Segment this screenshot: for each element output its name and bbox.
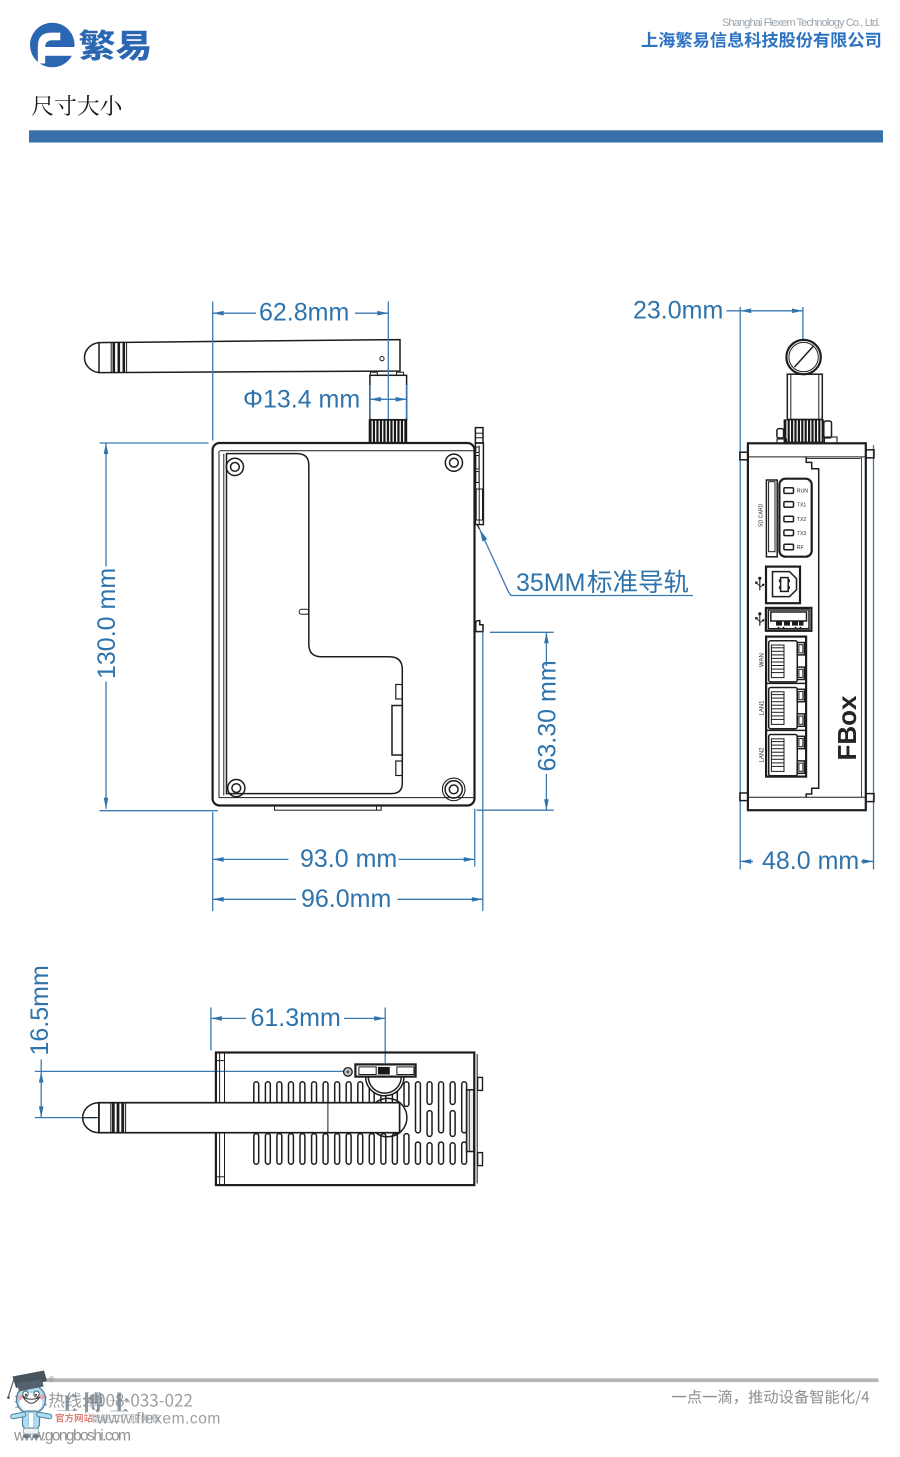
svg-text:TX2: TX2 bbox=[797, 517, 807, 523]
svg-text:61.3mm: 61.3mm bbox=[251, 1004, 341, 1032]
svg-text:LAN2: LAN2 bbox=[760, 747, 766, 763]
svg-text:RUN: RUN bbox=[797, 489, 808, 495]
svg-text:Shanghai Flexem Technology Co.: Shanghai Flexem Technology Co., Ltd. bbox=[722, 17, 881, 29]
svg-text:23.0mm: 23.0mm bbox=[633, 297, 723, 325]
svg-text:TX1: TX1 bbox=[797, 502, 807, 508]
svg-text:Φ13.4 mm: Φ13.4 mm bbox=[243, 386, 360, 414]
svg-text:16.5mm: 16.5mm bbox=[26, 965, 54, 1055]
svg-text:130.0 mm: 130.0 mm bbox=[93, 568, 121, 679]
svg-text:35MM: 35MM bbox=[516, 569, 585, 597]
svg-text:96.0mm: 96.0mm bbox=[301, 885, 391, 913]
svg-text:93.0 mm: 93.0 mm bbox=[300, 845, 397, 873]
svg-text:LAN1: LAN1 bbox=[760, 700, 766, 716]
svg-text:63.30 mm: 63.30 mm bbox=[533, 660, 561, 771]
svg-text:FBox: FBox bbox=[832, 695, 862, 761]
svg-text:TX3: TX3 bbox=[797, 531, 807, 537]
svg-text:SD CARD: SD CARD bbox=[759, 503, 765, 527]
svg-text:WAN: WAN bbox=[760, 653, 766, 667]
svg-text:48.0 mm: 48.0 mm bbox=[762, 847, 859, 875]
svg-text:62.8mm: 62.8mm bbox=[259, 299, 349, 327]
svg-text:RF: RF bbox=[797, 545, 804, 551]
svg-text:®: ® bbox=[49, 1375, 55, 1384]
